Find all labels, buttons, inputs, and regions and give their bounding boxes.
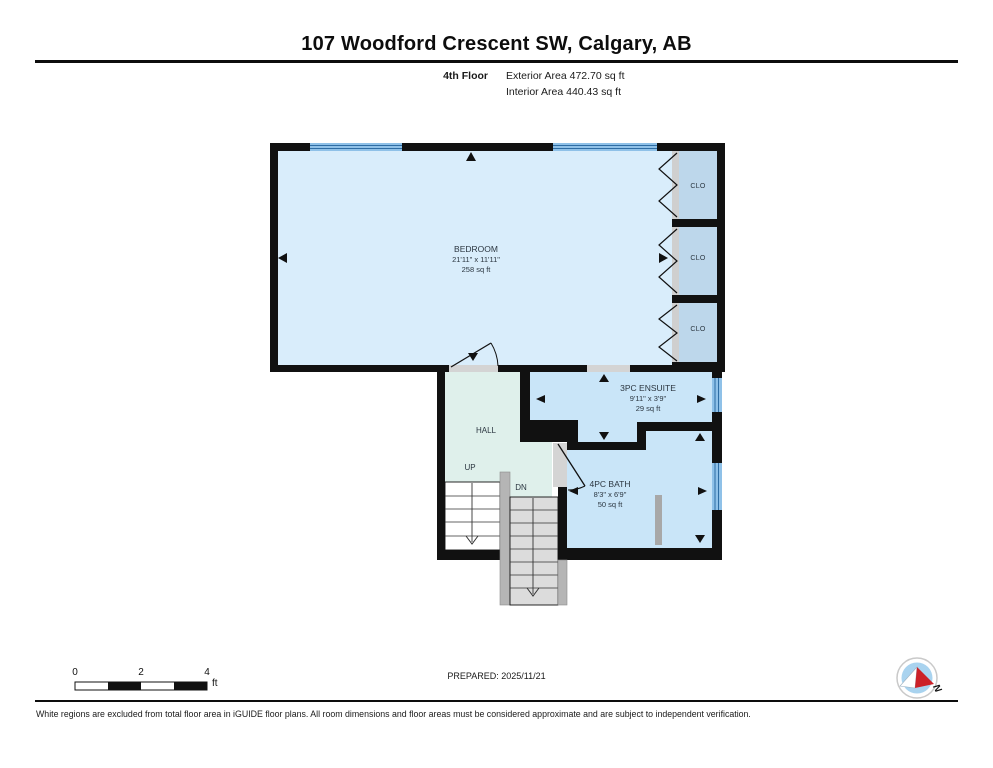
closet-bottom-label: CLO <box>678 326 718 333</box>
hall-label: HALL <box>456 426 516 435</box>
bedroom-label: BEDROOM 21'11" x 11'11" 258 sq ft <box>396 244 556 276</box>
scale-bar <box>75 682 207 690</box>
stairs-up-label: UP <box>455 463 485 472</box>
stair-rail-right <box>558 560 567 605</box>
floor-plan-drawing <box>0 0 993 768</box>
room-dimensions: 8'3" x 6'9" <box>550 490 670 501</box>
stairs-down <box>510 497 558 605</box>
room-area: 258 sq ft <box>396 265 556 276</box>
window-ensuite <box>712 378 722 412</box>
stairs-down-label: DN <box>506 483 536 492</box>
disclaimer-text: White regions are excluded from total fl… <box>36 709 956 719</box>
room-name: BEDROOM <box>396 244 556 255</box>
window-top-left <box>310 143 402 151</box>
ensuite-label: 3PC ENSUITE 9'11" x 3'9" 29 sq ft <box>588 383 708 415</box>
window-top-right <box>553 143 657 151</box>
room-name: 4PC BATH <box>550 479 670 490</box>
bedroom-door-threshold <box>449 365 498 372</box>
footer-divider <box>35 700 958 702</box>
room-area: 50 sq ft <box>550 500 670 511</box>
room-dimensions: 9'11" x 3'9" <box>588 394 708 405</box>
floor-plan-page: 107 Woodford Crescent SW, Calgary, AB 4t… <box>0 0 993 768</box>
room-area: 29 sq ft <box>588 404 708 415</box>
window-bath <box>712 463 722 510</box>
prepared-date: PREPARED: 2025/11/21 <box>0 671 993 681</box>
room-name: 3PC ENSUITE <box>588 383 708 394</box>
stairs-up <box>445 482 500 550</box>
closet-top-label: CLO <box>678 183 718 190</box>
closet-middle-label: CLO <box>678 255 718 262</box>
bath-label: 4PC BATH 8'3" x 6'9" 50 sq ft <box>550 479 670 511</box>
room-dimensions: 21'11" x 11'11" <box>396 255 556 266</box>
ensuite-door-threshold <box>587 365 630 372</box>
